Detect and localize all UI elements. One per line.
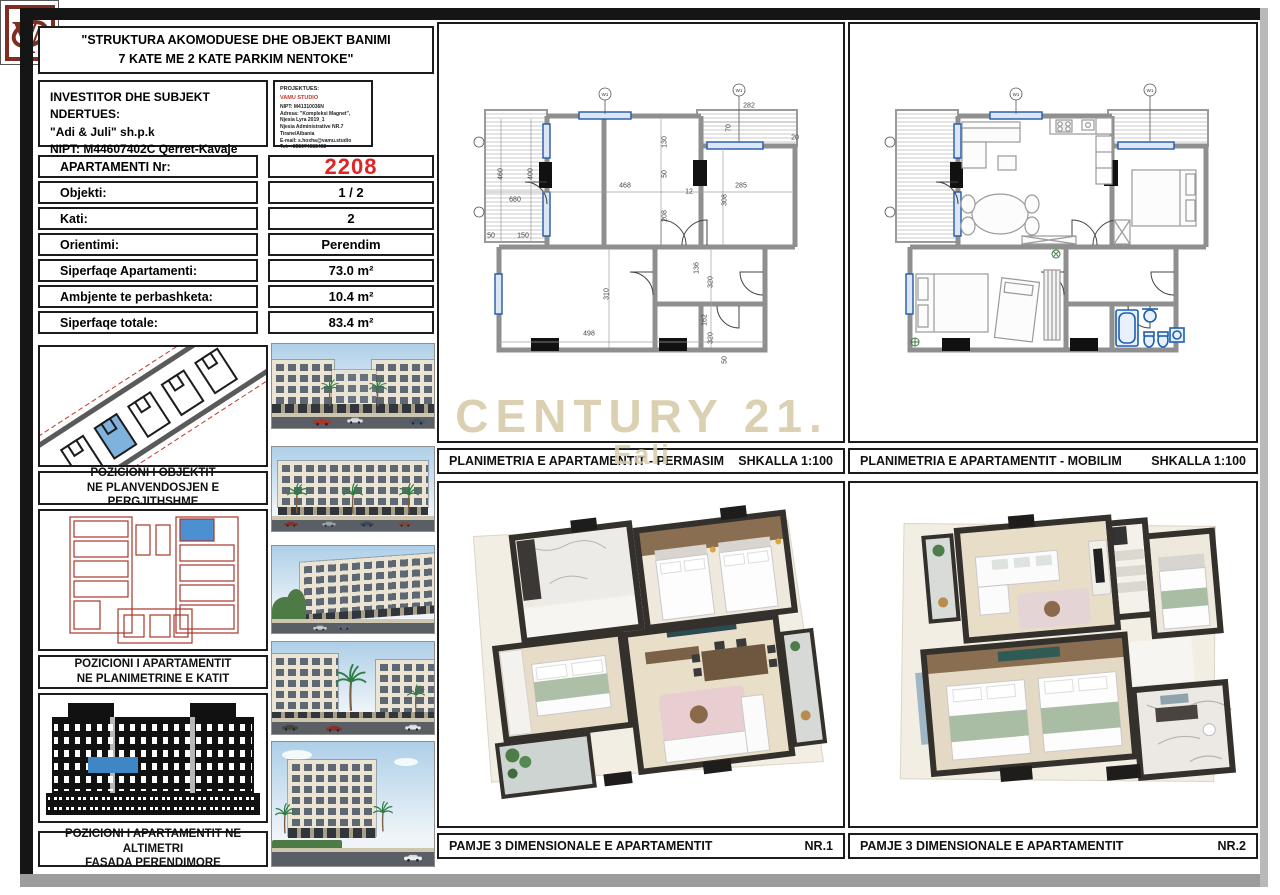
panel-title: PAMJE 3 DIMENSIONALE E APARTAMENTIT — [860, 839, 1123, 853]
label-mobilim: PLANIMETRIA E APARTAMENTIT - MOBILIM SHK… — [848, 448, 1258, 474]
view3d-2-panel — [848, 481, 1258, 828]
svg-text:W1: W1 — [602, 92, 609, 97]
panel-scale: SHKALLA 1:100 — [738, 454, 833, 468]
designer-line: Adresa: "Kompleksi Magnet", — [280, 111, 366, 118]
info-row: Siperfaqe totale:83.4 m² — [38, 311, 434, 334]
svg-text:W1: W1 — [1013, 92, 1020, 97]
floor-key-svg — [40, 511, 266, 649]
floor-key-diagram — [38, 509, 268, 651]
site-plan-svg — [40, 347, 266, 465]
investor-company: "Adi & Juli" sh.p.k — [50, 124, 256, 141]
info-row-value: 73.0 m² — [268, 259, 434, 282]
view3d-1-svg — [439, 483, 843, 826]
caption-floor-position: POZICIONI I APARTAMENTIT NE PLANIMETRINE… — [38, 655, 268, 689]
info-row: Objekti:1 / 2 — [38, 181, 434, 204]
caption-line: POZICIONI I APARTAMENTIT — [40, 657, 266, 672]
caption-facade-position: POZICIONI I APARTAMENTIT NE ALTIMETRI FA… — [38, 831, 268, 867]
info-row: APARTAMENTI Nr:2208 — [38, 155, 434, 178]
panel-scale: SHKALLA 1:100 — [1151, 454, 1246, 468]
info-row: Orientimi:Perendim — [38, 233, 434, 256]
info-row-label: Ambjente te perbashketa: — [38, 285, 258, 308]
designer-heading: PROJEKTUES: — [280, 86, 366, 93]
info-row-label: Siperfaqe Apartamenti: — [38, 259, 258, 282]
panel-number: NR.2 — [1218, 839, 1246, 853]
plan-mobilim-panel: W1 W1 — [848, 22, 1258, 443]
info-row-value: Perendim — [268, 233, 434, 256]
view3d-1-panel — [437, 481, 845, 828]
designer-line: Tel: +355674088492 — [280, 144, 366, 151]
info-row-value: 1 / 2 — [268, 181, 434, 204]
panel-title: PLANIMETRIA E APARTAMENTIT - MOBILIM — [860, 454, 1122, 468]
project-title-line2: 7 KATE ME 2 KATE PARKIM NENTOKE" — [40, 50, 432, 69]
info-row-value: 2 — [268, 207, 434, 230]
designer-box: PROJEKTUES: VAMU STUDIO NIPT: M41310036N… — [273, 80, 373, 147]
caption-line: FASADA PERENDIMORE — [40, 856, 266, 871]
label-view1: PAMJE 3 DIMENSIONALE E APARTAMENTIT NR.1 — [437, 833, 845, 859]
designer-line: Njesia Administrative NR.7 — [280, 124, 366, 131]
designer-line: Tirane/Albania — [280, 131, 366, 138]
info-row: Kati:2 — [38, 207, 434, 230]
designer-line: NIPT: M41310036N — [280, 104, 366, 111]
building-render-photo — [272, 344, 434, 428]
project-title-box: "STRUKTURA AKOMODUESE DHE OBJEKT BANIMI … — [38, 26, 434, 74]
plan-permasim-panel: W1 W1 4604006805015046828528270130502081… — [437, 22, 845, 443]
frame-left-bar — [20, 8, 33, 876]
svg-text:W1: W1 — [736, 88, 743, 93]
info-row: Ambjente te perbashketa:10.4 m² — [38, 285, 434, 308]
project-title-line1: "STRUKTURA AKOMODUESE DHE OBJEKT BANIMI — [40, 31, 432, 50]
caption-line: POZICIONI I APARTAMENTIT NE ALTIMETRI — [40, 827, 266, 857]
investor-heading: INVESTITOR DHE SUBJEKT NDERTUES: — [50, 89, 256, 124]
caption-line: NE PLANIMETRINE E KATIT — [40, 672, 266, 687]
facade-svg — [40, 695, 266, 821]
designer-studio: VAMU STUDIO — [280, 95, 366, 102]
designer-line: Njesia Lyra 2019_1 — [280, 117, 366, 124]
view3d-2-svg — [850, 483, 1256, 826]
apartment-info-table: APARTAMENTI Nr:2208Objekti:1 / 2Kati:2Or… — [38, 155, 434, 334]
caption-line: POZICIONI I OBJEKTIT — [40, 466, 266, 481]
panel-title: PLANIMETRIA E APARTAMENTIT - PERMASIM — [449, 454, 724, 468]
facade-elevation-diagram — [38, 693, 268, 823]
drawing-sheet: "STRUKTURA AKOMODUESE DHE OBJEKT BANIMI … — [0, 0, 1280, 895]
panel-number: NR.1 — [805, 839, 833, 853]
building-render-photo — [272, 447, 434, 531]
info-row-value: 2208 — [268, 155, 434, 178]
label-view2: PAMJE 3 DIMENSIONALE E APARTAMENTIT NR.2 — [848, 833, 1258, 859]
caption-line: NE PLANVENDOSJEN E PERGJITHSHME — [40, 481, 266, 511]
designer-line: E-mail: s.hoxha@vamu.studio — [280, 138, 366, 145]
building-render-photo — [272, 642, 434, 734]
building-render-photo — [272, 546, 434, 633]
svg-text:W1: W1 — [1147, 88, 1154, 93]
frame-bottom-bar — [20, 874, 1266, 887]
building-render-photo — [272, 742, 434, 866]
label-permasim: PLANIMETRIA E APARTAMENTIT - PERMASIM SH… — [437, 448, 845, 474]
frame-top-bar — [20, 8, 1266, 20]
info-row-label: APARTAMENTI Nr: — [38, 155, 258, 178]
info-row-label: Kati: — [38, 207, 258, 230]
caption-site-position: POZICIONI I OBJEKTIT NE PLANVENDOSJEN E … — [38, 471, 268, 505]
info-row-value: 83.4 m² — [268, 311, 434, 334]
info-row-label: Objekti: — [38, 181, 258, 204]
plan-mobilim-svg: W1 W1 — [850, 24, 1256, 441]
frame-right-bar — [1260, 8, 1268, 887]
info-row-value: 10.4 m² — [268, 285, 434, 308]
info-row: Siperfaqe Apartamenti:73.0 m² — [38, 259, 434, 282]
investor-box: INVESTITOR DHE SUBJEKT NDERTUES: "Adi & … — [38, 80, 268, 147]
info-row-label: Siperfaqe totale: — [38, 311, 258, 334]
site-plan-diagram — [38, 345, 268, 467]
info-row-label: Orientimi: — [38, 233, 258, 256]
plan-permasim-svg: W1 W1 — [439, 24, 843, 441]
panel-title: PAMJE 3 DIMENSIONALE E APARTAMENTIT — [449, 839, 712, 853]
